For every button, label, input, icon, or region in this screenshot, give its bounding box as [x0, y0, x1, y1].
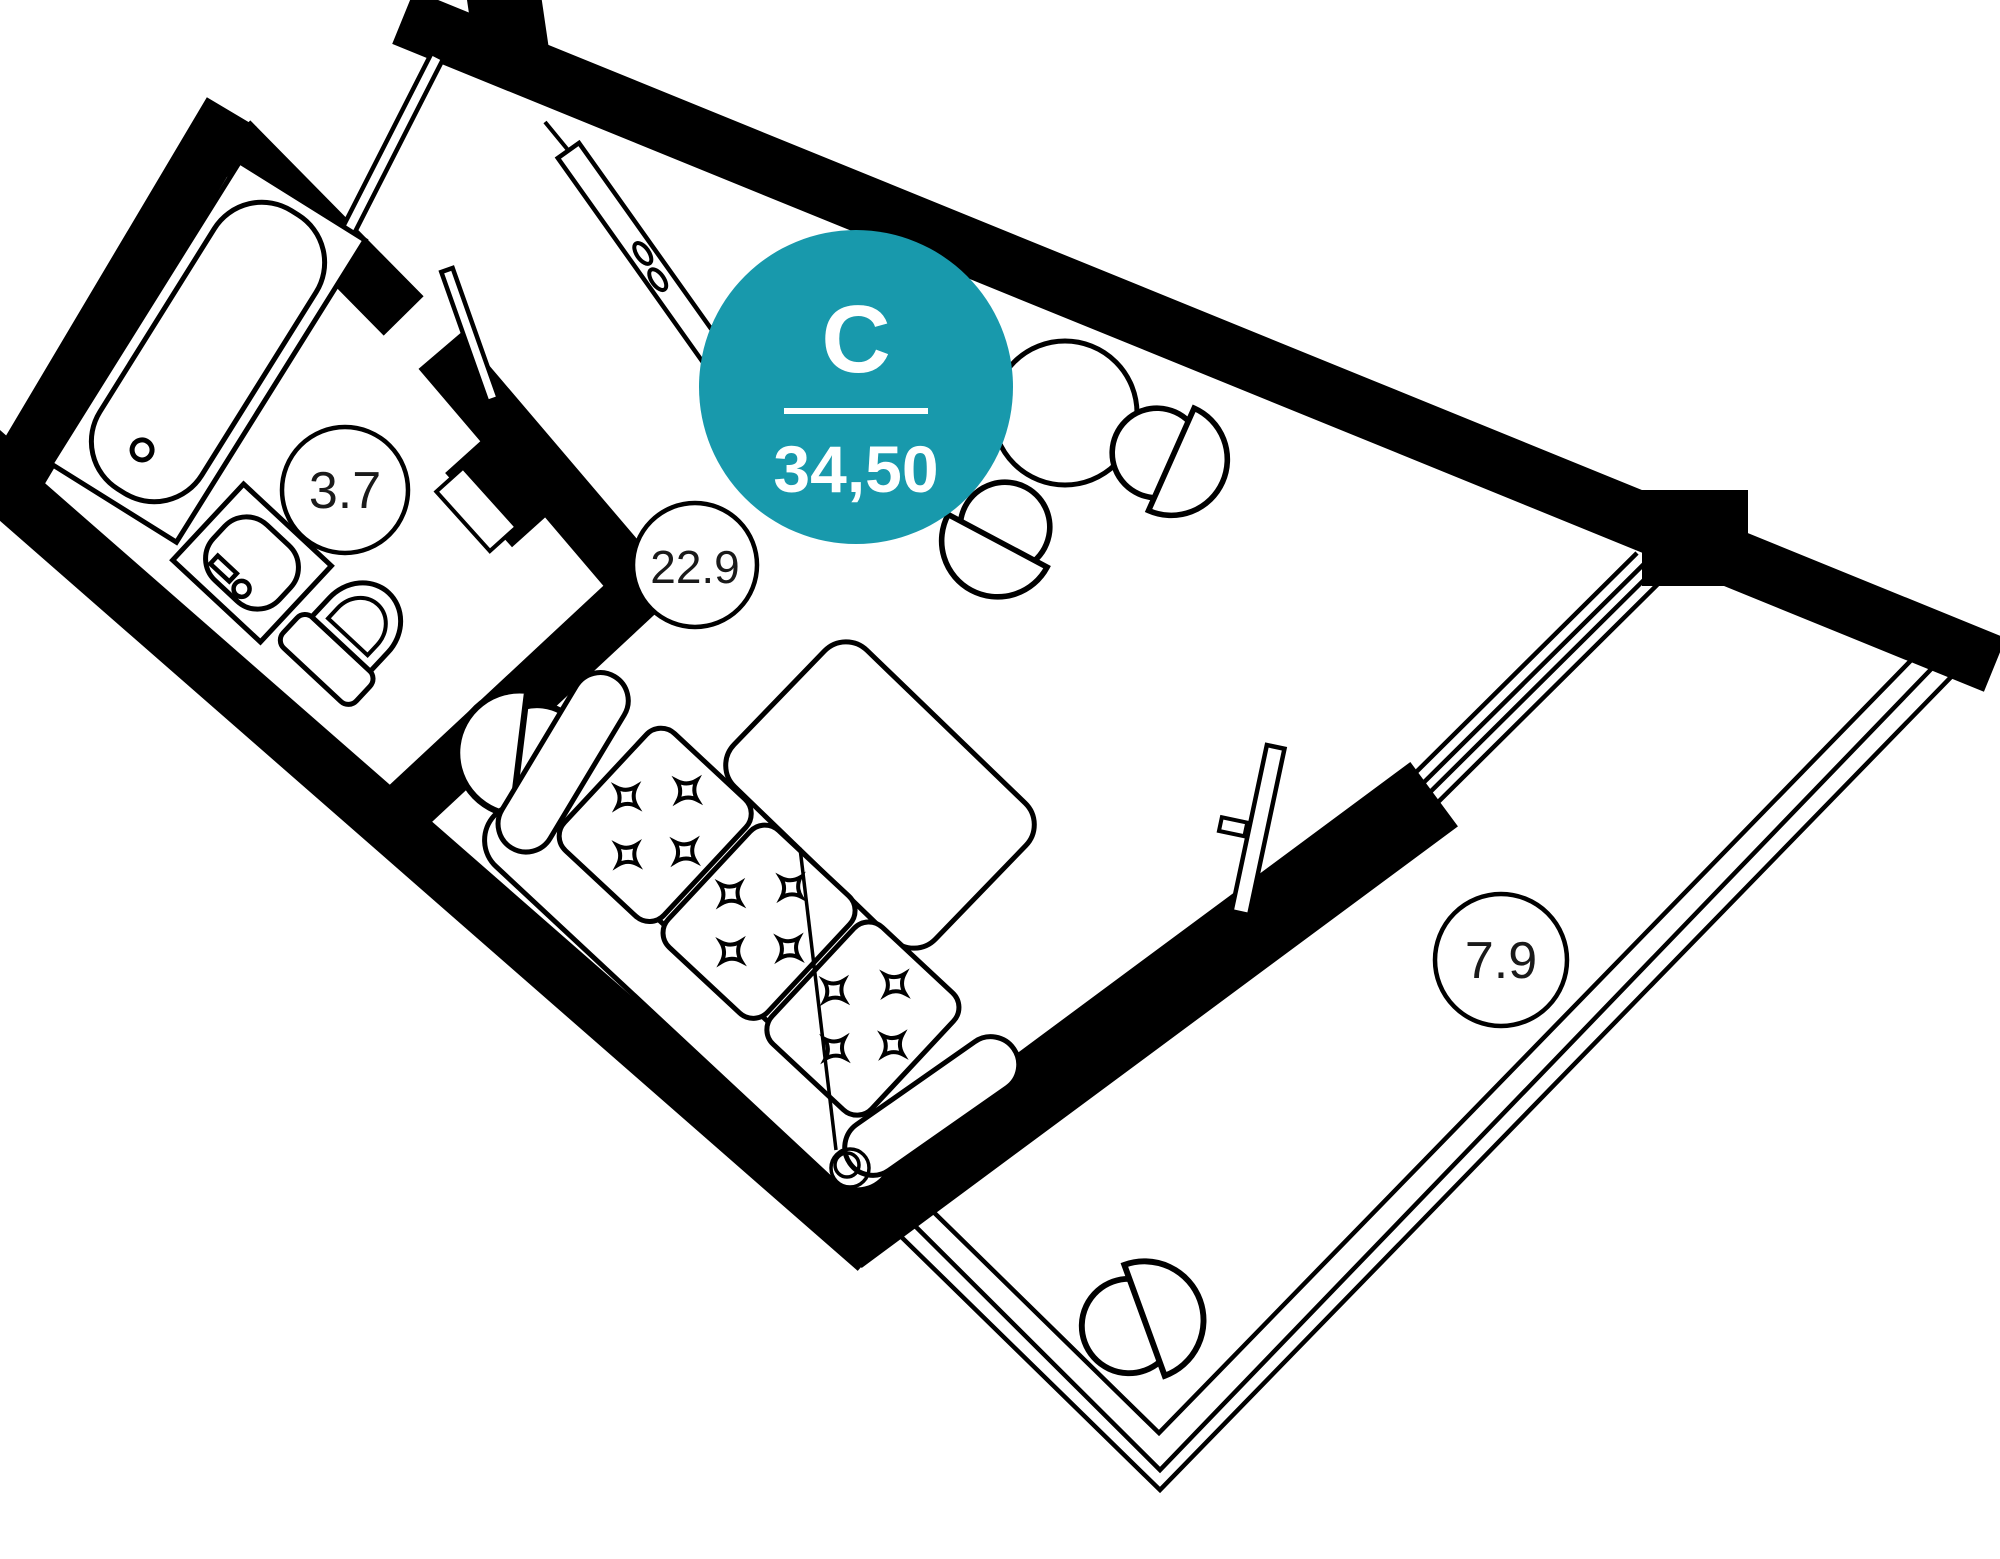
floor-plan-page: 3.7 22.9 7.9 С 34,50: [0, 0, 2000, 1559]
unit-badge-divider: [784, 408, 928, 414]
room-area-label-bathroom: 3.7: [282, 427, 408, 553]
floor-plan-canvas: 3.7 22.9 7.9 С 34,50: [0, 0, 2000, 1559]
unit-badge-area: 34,50: [773, 432, 938, 506]
unit-badge-letter: С: [821, 286, 890, 393]
room-area-label-living-room: 22.9: [633, 503, 757, 627]
wall-right-pier: [1642, 490, 1748, 586]
room-area-label-balcony: 7.9: [1435, 894, 1567, 1026]
tv-mount: [1219, 817, 1247, 836]
living-room-area-text: 22.9: [650, 541, 740, 593]
balcony-window: [1389, 553, 1663, 825]
balcony-area-text: 7.9: [1465, 932, 1537, 990]
bathroom-area-text: 3.7: [309, 462, 381, 520]
vent-shaft: [431, 413, 579, 560]
entry-door-leaf: [341, 53, 443, 237]
balcony-chair: [1064, 1245, 1220, 1398]
wall-entry-stub: [500, 0, 512, 52]
unit-badge[interactable]: С 34,50: [699, 230, 1013, 544]
